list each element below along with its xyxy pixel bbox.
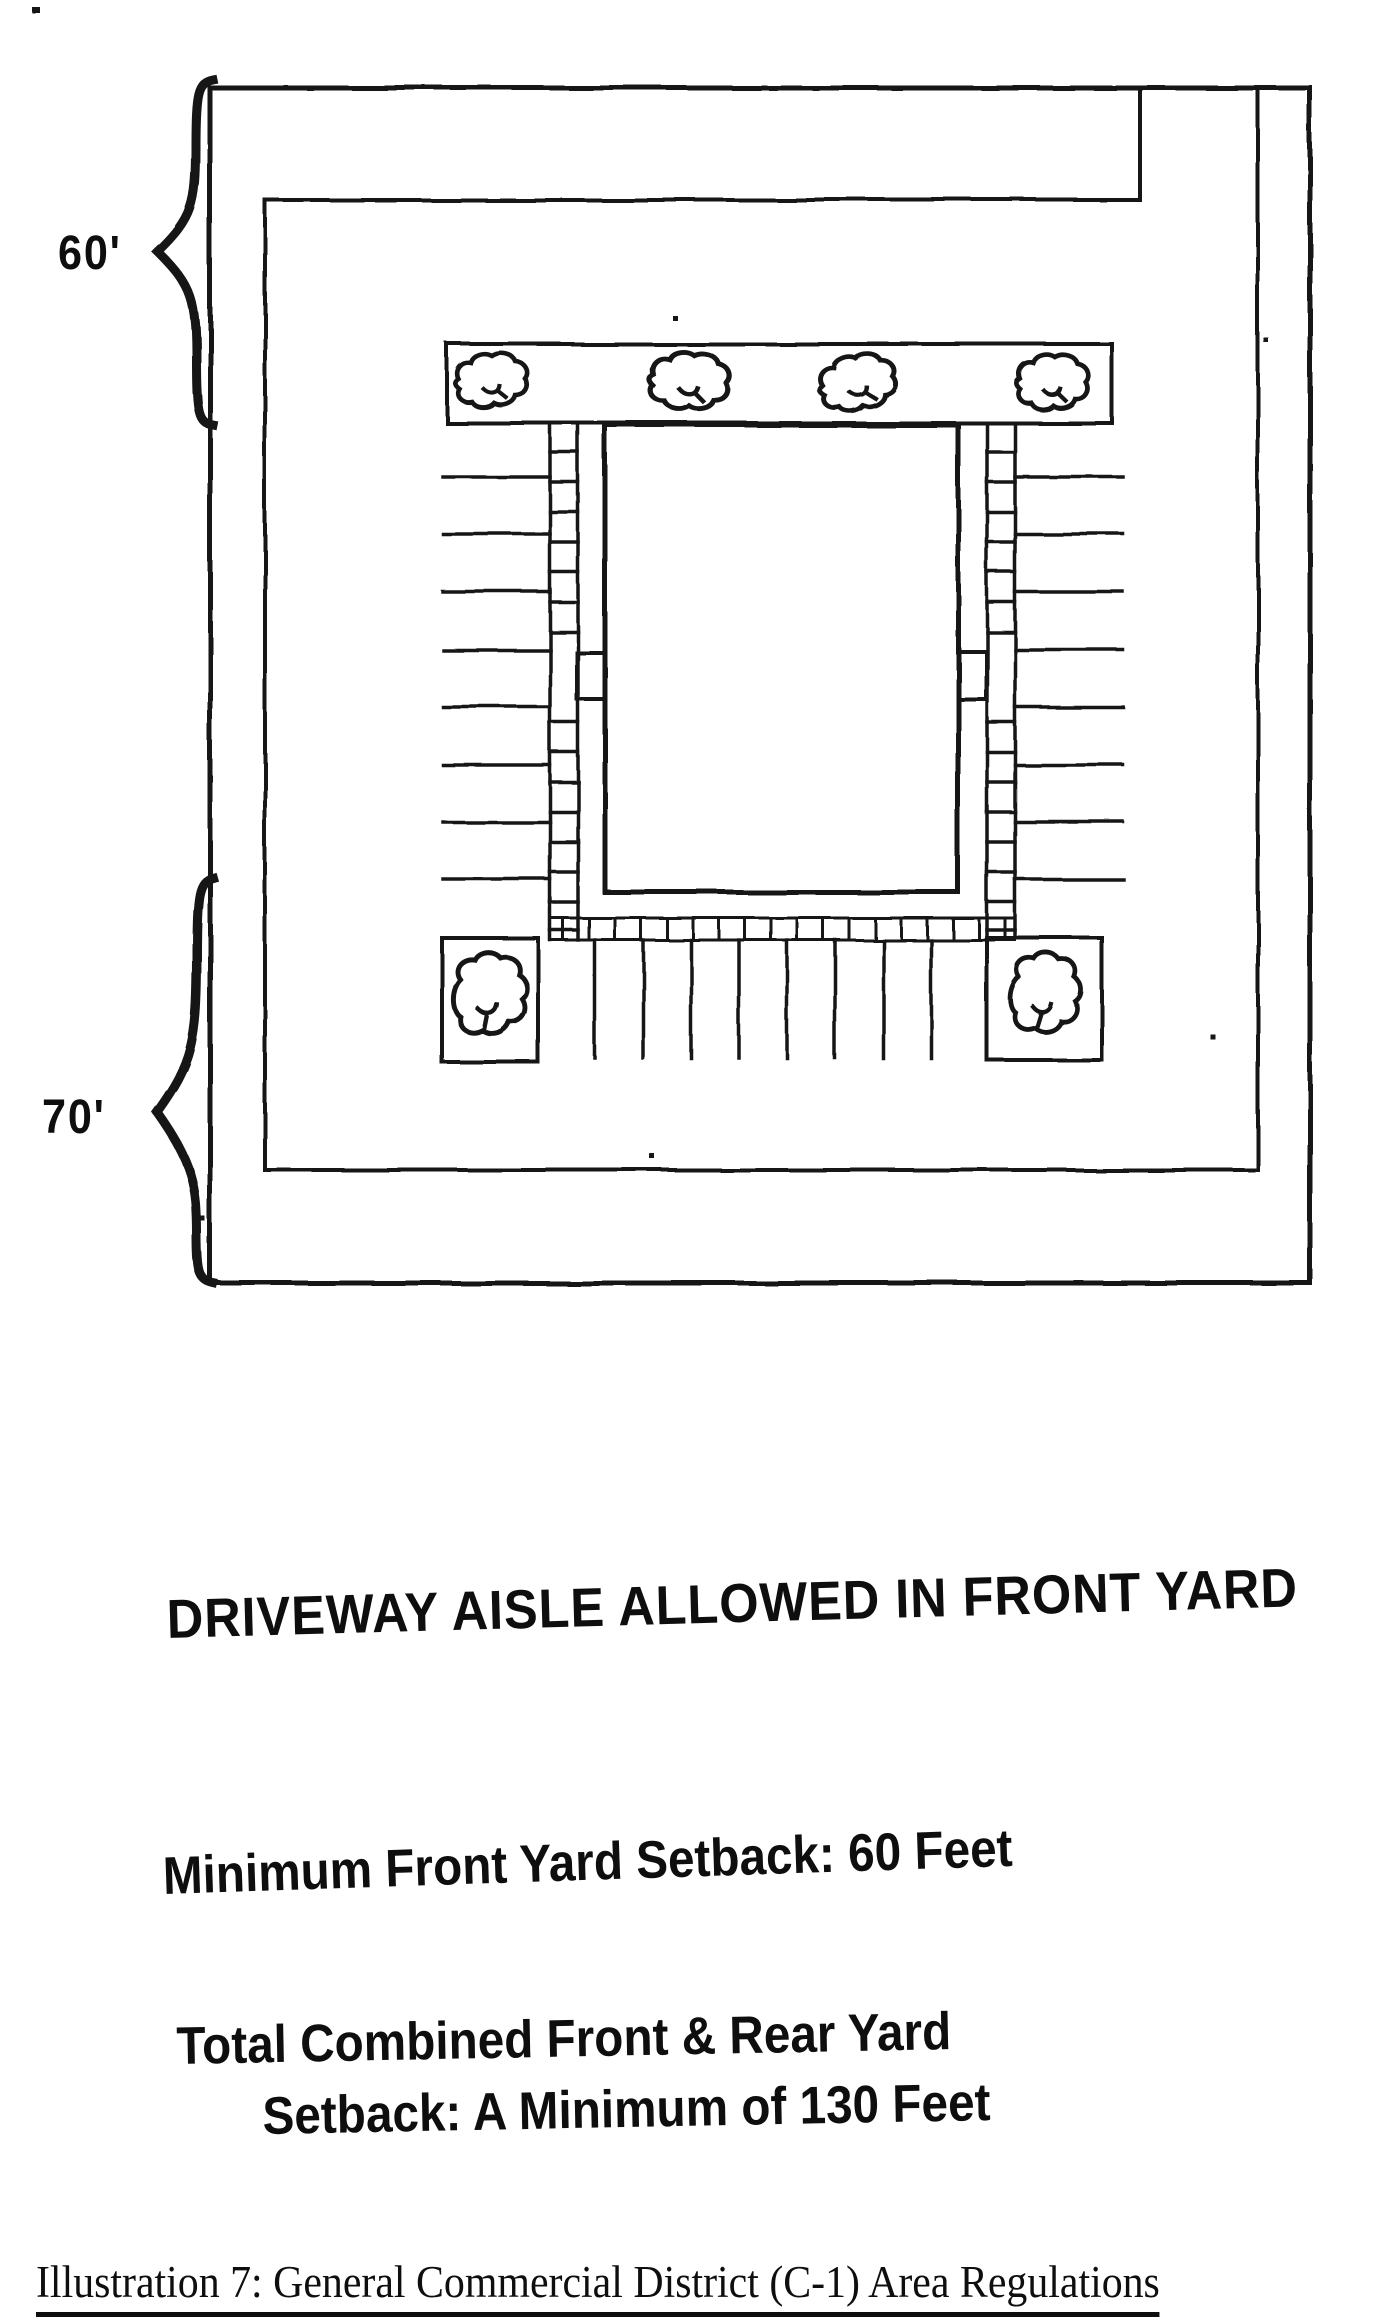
parking-column-right xyxy=(987,423,1015,937)
landscape-island-right xyxy=(987,938,1102,1060)
parking-stalls-left xyxy=(443,477,550,879)
site-plan-diagram xyxy=(0,0,1393,2323)
building-entry-right xyxy=(958,651,986,699)
setback-line xyxy=(265,88,1258,1170)
shrub-icon xyxy=(455,347,1089,416)
building-entry-left xyxy=(577,653,605,699)
dimension-label-rear: 70' xyxy=(42,1094,106,1142)
figure-caption: Illustration 7: General Commercial Distr… xyxy=(36,2260,1160,2317)
scan-specks xyxy=(33,8,1269,1221)
dimension-brace-rear xyxy=(157,878,213,1283)
parking-stalls-rear xyxy=(595,940,931,1058)
property-line xyxy=(210,88,1310,1283)
walkway-row-rear xyxy=(550,918,1015,940)
note-combined-setback-line2: Setback: A Minimum of 130 Feet xyxy=(262,2076,991,2143)
dimension-brace-front xyxy=(158,80,213,425)
building-footprint xyxy=(605,425,958,892)
note-combined-setback-line1: Total Combined Front & Rear Yard xyxy=(176,2005,952,2073)
parking-column-left xyxy=(550,423,578,940)
landscape-strip xyxy=(447,344,1112,423)
parking-stalls-right xyxy=(1015,477,1123,879)
dimension-label-front: 60' xyxy=(58,230,122,278)
shrub-icon xyxy=(453,950,1084,1035)
scanned-document-page: 60' 70' DRIVEWAY AISLE ALLOWED IN FRONT … xyxy=(0,0,1393,2323)
